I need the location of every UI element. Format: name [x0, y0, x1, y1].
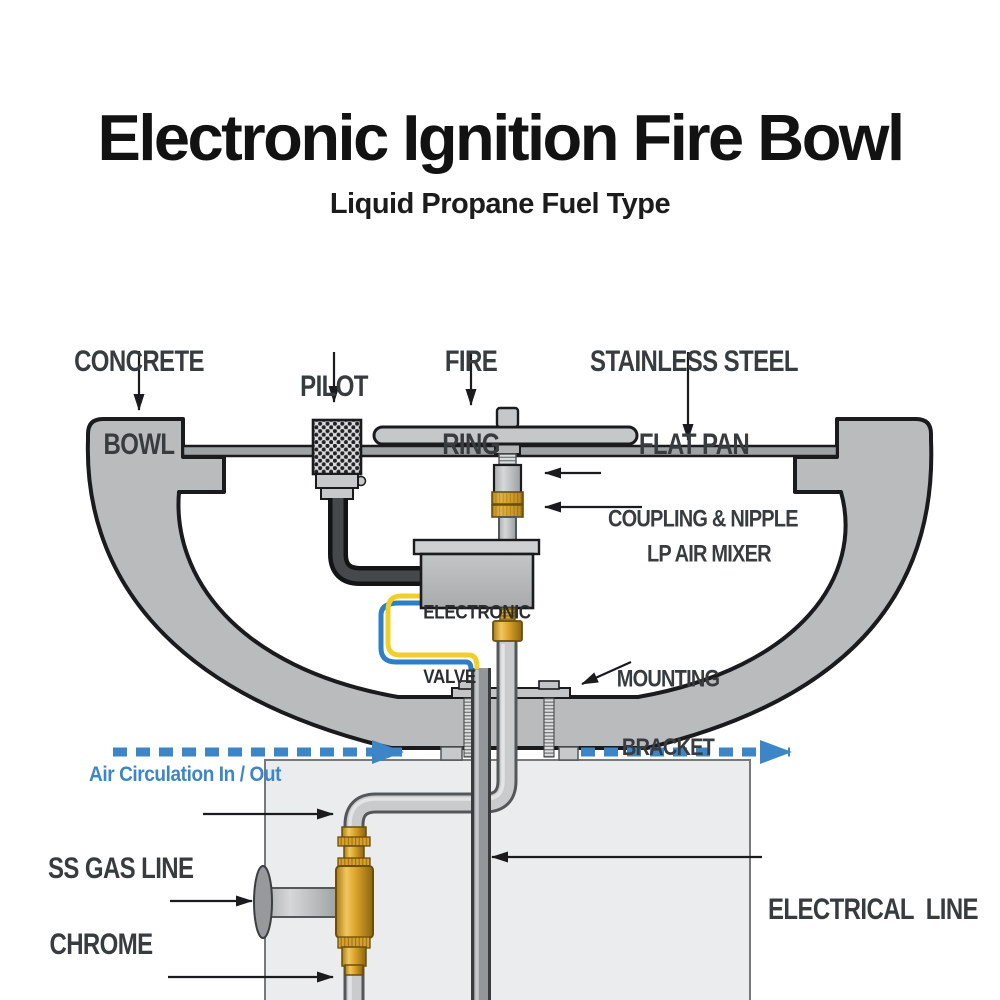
label-line: LP AIR MIXER — [647, 543, 771, 566]
label-line: CHROME — [38, 932, 165, 960]
bowl-foot-left — [441, 747, 462, 760]
label-line: VALVE — [423, 667, 531, 688]
label-pilot: PILOT — [300, 319, 368, 457]
label-line: CONCRETE — [74, 349, 204, 377]
pilot-pipe — [338, 498, 424, 576]
label-line: STAINLESS STEEL — [590, 349, 798, 377]
label-mounting-bracket: MOUNTING BRACKET — [617, 622, 719, 805]
label-line: RING — [442, 432, 500, 460]
label-line: ELECTRONIC — [423, 603, 531, 624]
label-line: BOWL — [74, 432, 204, 460]
label-line: MOUNTING — [617, 668, 719, 691]
page-title: Electronic Ignition Fire Bowl — [97, 100, 902, 175]
label-line: Air Circulation In / Out — [89, 765, 281, 785]
label-line: ELECTRICAL LINE — [768, 897, 978, 925]
label-electronic-valve: ELECTRONIC VALVE — [423, 560, 531, 732]
label-gas-line: GAS LINE — [46, 961, 155, 1000]
bowl-foot-right — [559, 747, 578, 760]
label-line: FLAT PAN — [590, 432, 798, 460]
label-electrical-line: ELECTRICAL LINE — [768, 842, 978, 980]
fire-bowl-diagram-page: Electronic Ignition Fire Bowl Liquid Pro… — [0, 0, 1000, 1000]
label-concrete-bowl: CONCRETE BOWL — [74, 294, 204, 514]
label-line: FIRE — [442, 349, 500, 377]
label-line: BRACKET — [617, 737, 719, 760]
label-fire-ring: FIRE RING — [442, 294, 500, 514]
label-lp-air-mixer: LP AIR MIXER — [647, 497, 771, 612]
valve-riser-pipe — [499, 517, 516, 542]
label-line: PILOT — [300, 374, 368, 402]
page-subtitle: Liquid Propane Fuel Type — [330, 188, 670, 221]
